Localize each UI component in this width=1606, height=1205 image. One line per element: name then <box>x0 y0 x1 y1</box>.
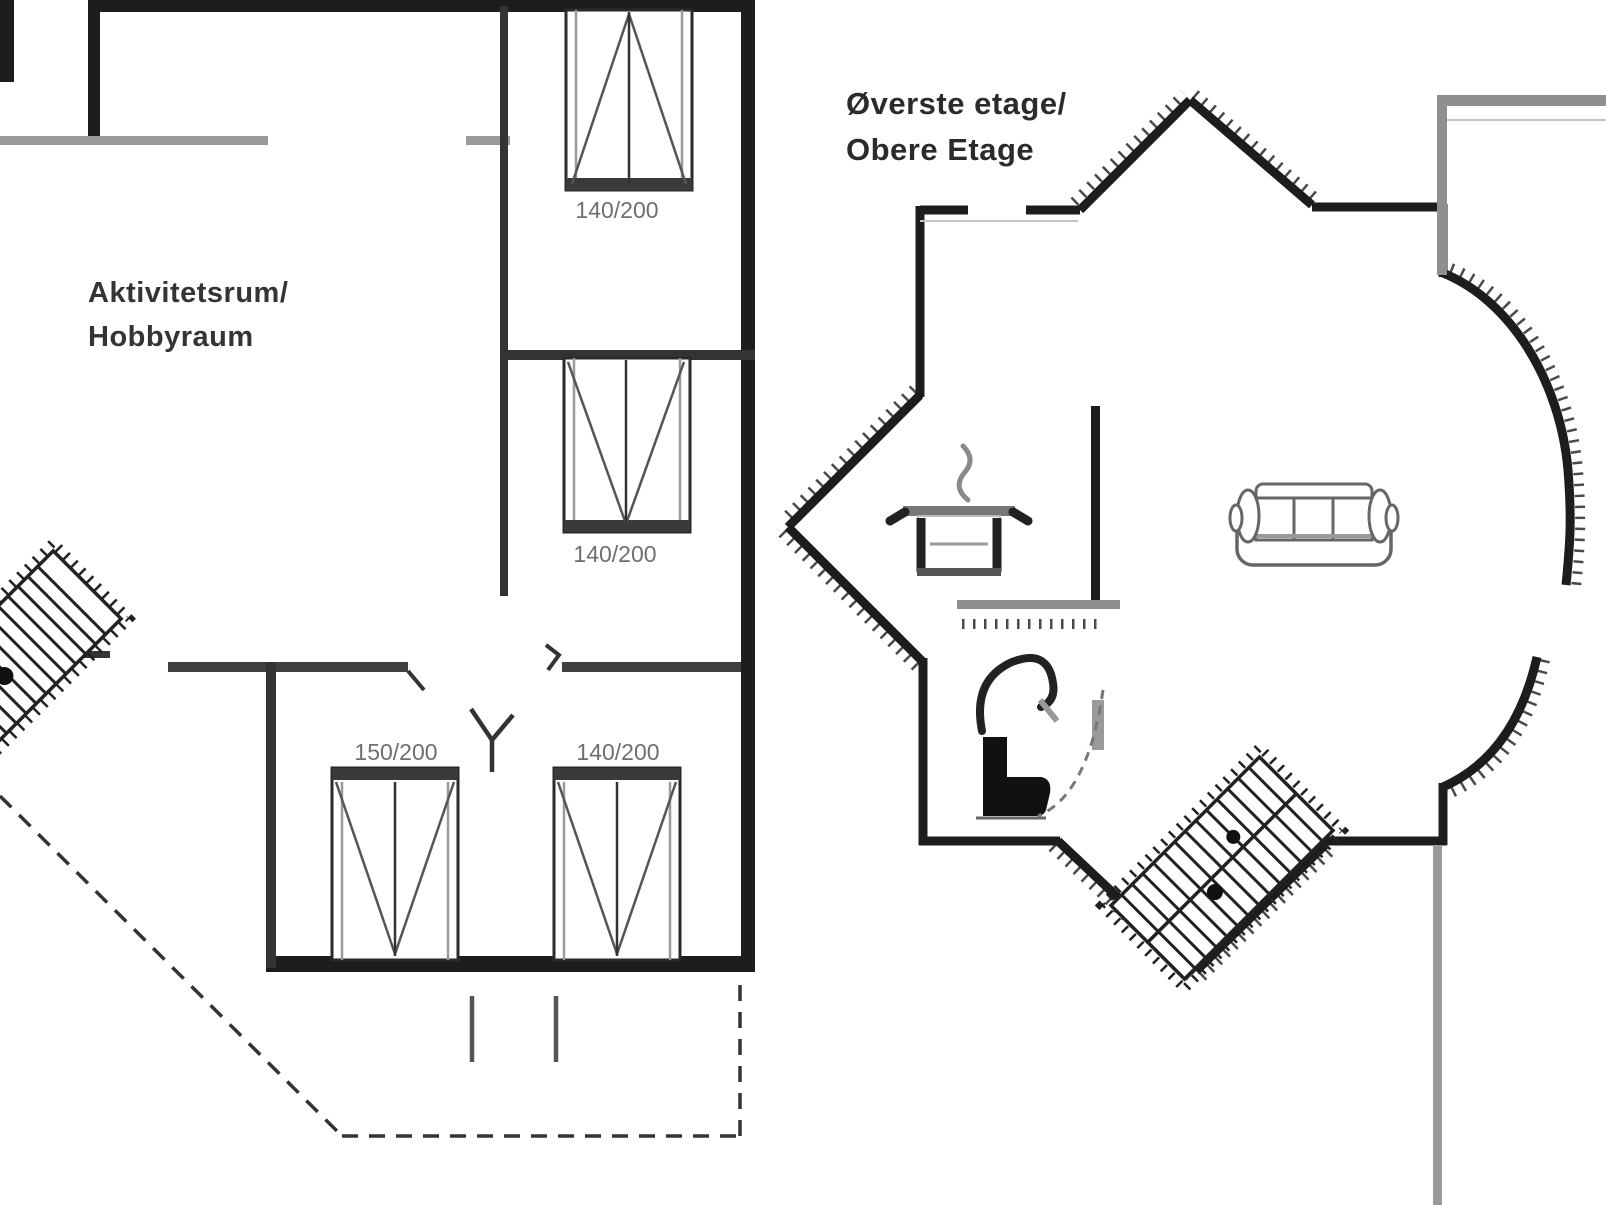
bed-middle <box>564 358 690 532</box>
bed-dimension-label: 140/200 <box>573 541 656 567</box>
wall-lamp-icon <box>471 709 513 772</box>
upper-floor-title-line1: Øverste etage/ <box>846 86 1067 121</box>
activity-room-label-line2: Hobbyraum <box>88 321 254 353</box>
bed-bottom-left <box>332 768 458 960</box>
left-building: 140/200 140/200 150/200 140/200 <box>0 0 755 1136</box>
door-swing-mark <box>408 671 424 690</box>
corridor-wall <box>168 662 408 672</box>
railing-line <box>0 136 268 145</box>
staircase-icon <box>0 542 130 761</box>
bed-top <box>566 10 692 190</box>
bedroom-side-wall <box>266 662 276 968</box>
annex-walls <box>1433 95 1606 1205</box>
terrace-posts <box>472 996 556 1062</box>
wall-segment <box>88 0 100 142</box>
floor-plan-page: 140/200 140/200 150/200 140/200 <box>0 0 1606 1205</box>
wall-segment <box>0 0 14 82</box>
toilet-icon <box>976 658 1057 818</box>
partition-wall <box>500 6 508 596</box>
bed-bottom-right <box>554 768 680 960</box>
sofa-icon <box>1230 484 1398 565</box>
bed-dimension-label: 140/200 <box>575 197 658 223</box>
right-building: Øverste etage/ Obere Etage <box>782 86 1606 1205</box>
bed-dimension-label: 150/200 <box>354 739 437 765</box>
activity-room-label-line1: Aktivitetsrum/ <box>88 277 288 309</box>
bed-dimension-label: 140/200 <box>576 739 659 765</box>
upper-floor-title-line2: Obere Etage <box>846 132 1034 167</box>
cooking-pot-icon <box>890 446 1028 572</box>
corridor-wall <box>562 662 741 672</box>
door-swing-mark <box>546 645 559 670</box>
right-wall <box>741 0 755 972</box>
floor-plan-drawing: 140/200 140/200 150/200 140/200 <box>0 0 1606 1205</box>
